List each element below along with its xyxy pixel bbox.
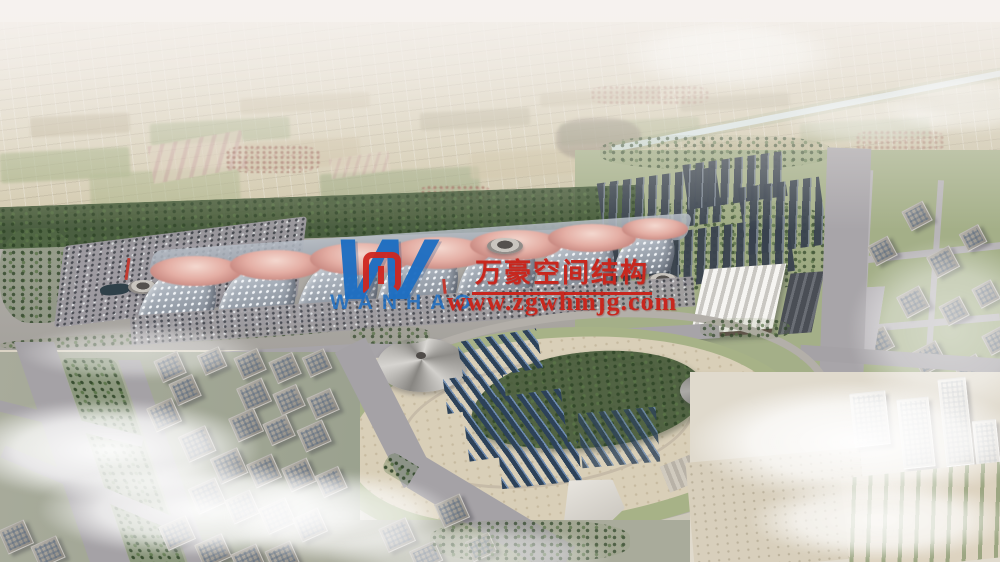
solar-array bbox=[738, 177, 829, 256]
park-solar-rows bbox=[578, 407, 660, 469]
village-cluster bbox=[590, 85, 710, 105]
building bbox=[849, 390, 890, 447]
dome-tip bbox=[416, 352, 426, 359]
aerial-render-image: W WANHAO 万豪空间结构 www.zgwhmjg.com bbox=[0, 0, 1000, 562]
tree-lined-parking bbox=[840, 462, 1000, 562]
pink-canopy bbox=[622, 218, 688, 240]
round-hall bbox=[487, 238, 523, 254]
tree-cluster bbox=[700, 318, 790, 340]
pink-canopy bbox=[150, 256, 242, 286]
village-cluster bbox=[225, 145, 320, 173]
pink-canopy bbox=[230, 250, 322, 280]
plaza-apron bbox=[686, 448, 870, 562]
tree-cluster bbox=[430, 520, 630, 562]
